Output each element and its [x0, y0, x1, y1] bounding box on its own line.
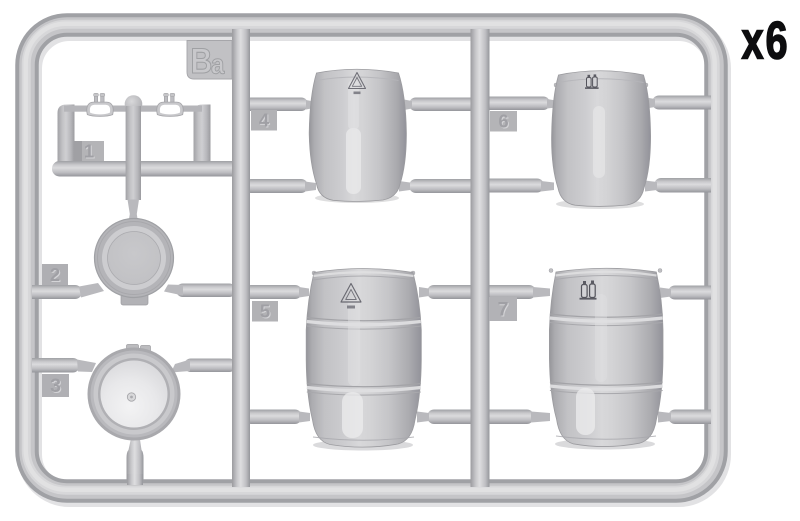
- svg-text:3: 3: [50, 375, 61, 397]
- svg-text:7: 7: [498, 299, 509, 321]
- svg-text:6: 6: [498, 111, 508, 132]
- svg-text:a: a: [211, 48, 225, 80]
- svg-text:1: 1: [84, 141, 94, 162]
- svg-text:4: 4: [259, 110, 270, 131]
- svg-text:x: x: [742, 11, 764, 70]
- svg-text:B: B: [191, 41, 213, 81]
- svg-text:5: 5: [260, 301, 270, 322]
- svg-text:2: 2: [50, 264, 60, 285]
- svg-text:6: 6: [766, 11, 788, 70]
